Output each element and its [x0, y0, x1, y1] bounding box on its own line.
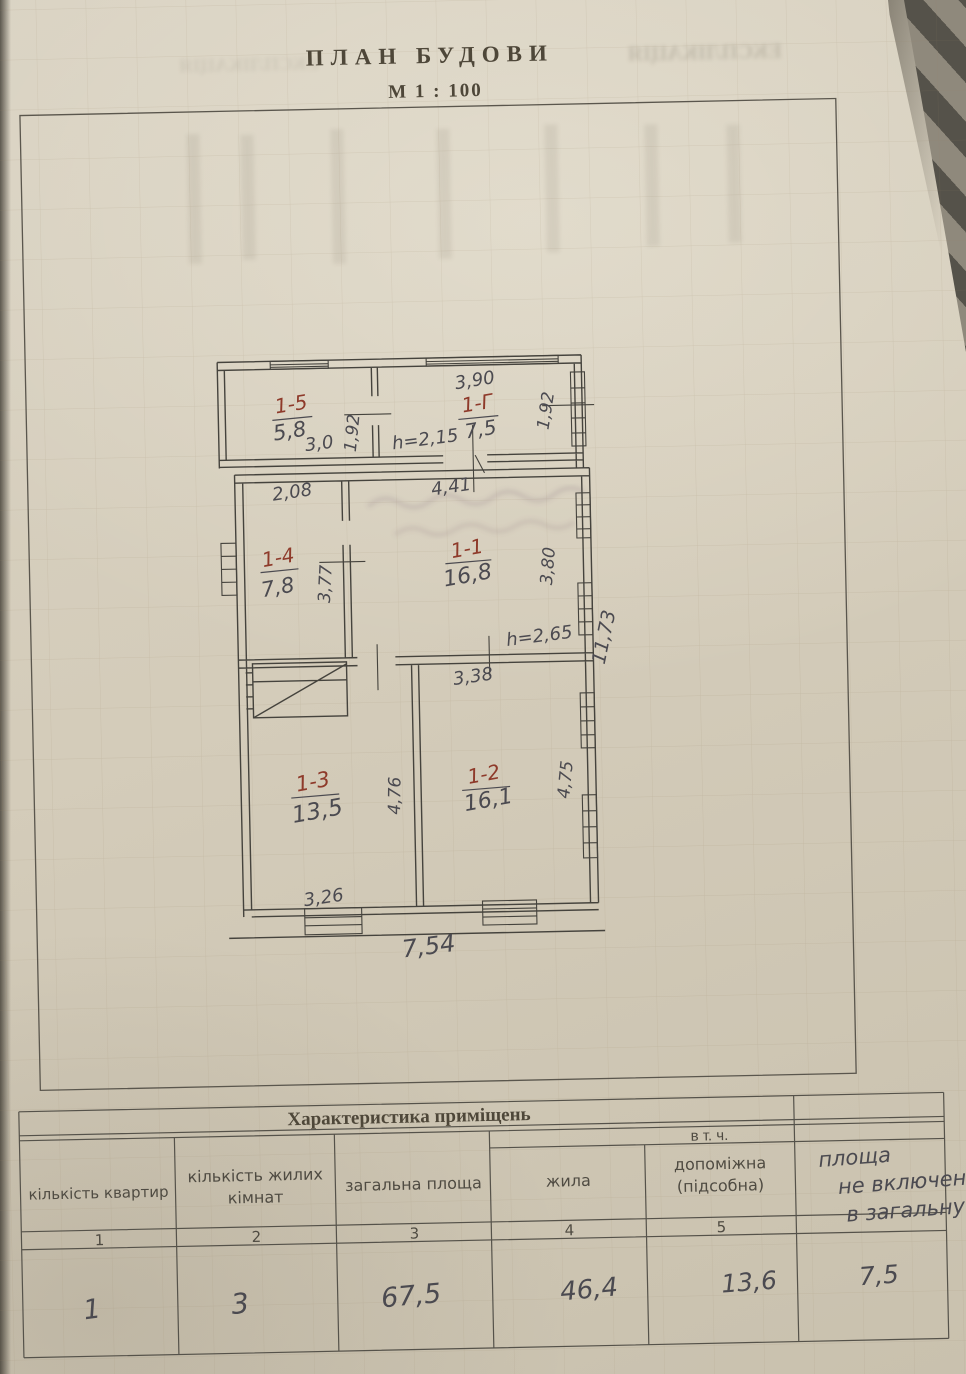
col3-number: 3	[409, 1224, 419, 1242]
value-rooms: 3	[229, 1286, 250, 1321]
col2-header-line2: кімнат	[228, 1187, 284, 1207]
value-living-area: 46,4	[559, 1272, 619, 1307]
dim-room12-side-height: 4,75	[554, 760, 578, 800]
col2-number: 2	[252, 1228, 262, 1246]
value-total-area: 67,5	[380, 1278, 443, 1314]
col4-number: 4	[564, 1221, 574, 1239]
value-aux-area: 13,6	[720, 1266, 778, 1299]
col5-header-line2: (підсобна)	[677, 1175, 765, 1196]
table-including-label: в т. ч.	[690, 1127, 728, 1145]
plan-drawing: ЕКСПЛІКАЦІЯ ЕКСПЛІКАЦІЯ ПЛАН БУДОВИ М 1 …	[0, 0, 966, 1374]
col1-header: кількість квартир	[28, 1183, 168, 1204]
col5-header-line1: допоміжна	[674, 1153, 767, 1174]
value-not-included-area: 7,5	[858, 1259, 900, 1291]
bleedthrough-word-right: ЕКСПЛІКАЦІЯ	[627, 39, 782, 66]
page-content: ЕКСПЛІКАЦІЯ ЕКСПЛІКАЦІЯ ПЛАН БУДОВИ М 1 …	[0, 0, 966, 1374]
col3-header: загальна площа	[345, 1173, 482, 1195]
dim-annex-left-height: 1,92	[341, 413, 365, 453]
room-area: 7,5	[463, 415, 498, 444]
dim-room14-side-height: 3,77	[315, 564, 337, 603]
col5-number: 5	[716, 1218, 726, 1236]
col2-header-line1: кількість жилих	[187, 1164, 323, 1186]
col1-number: 1	[95, 1231, 105, 1249]
dim-room13-side-height: 4,76	[385, 776, 406, 814]
dim-room11-side-height: 3,80	[537, 546, 560, 585]
dim-room15-width: 3,0	[304, 432, 335, 456]
scanned-plan-photo: ЕКСПЛІКАЦІЯ ЕКСПЛІКАЦІЯ ПЛАН БУДОВИ М 1 …	[0, 0, 966, 1374]
scale-label: М 1 : 100	[388, 80, 483, 103]
col4-header: жила	[546, 1171, 591, 1191]
page-title: ПЛАН БУДОВИ	[305, 40, 554, 70]
bleedthrough-word-left: ЕКСПЛІКАЦІЯ	[179, 53, 319, 77]
